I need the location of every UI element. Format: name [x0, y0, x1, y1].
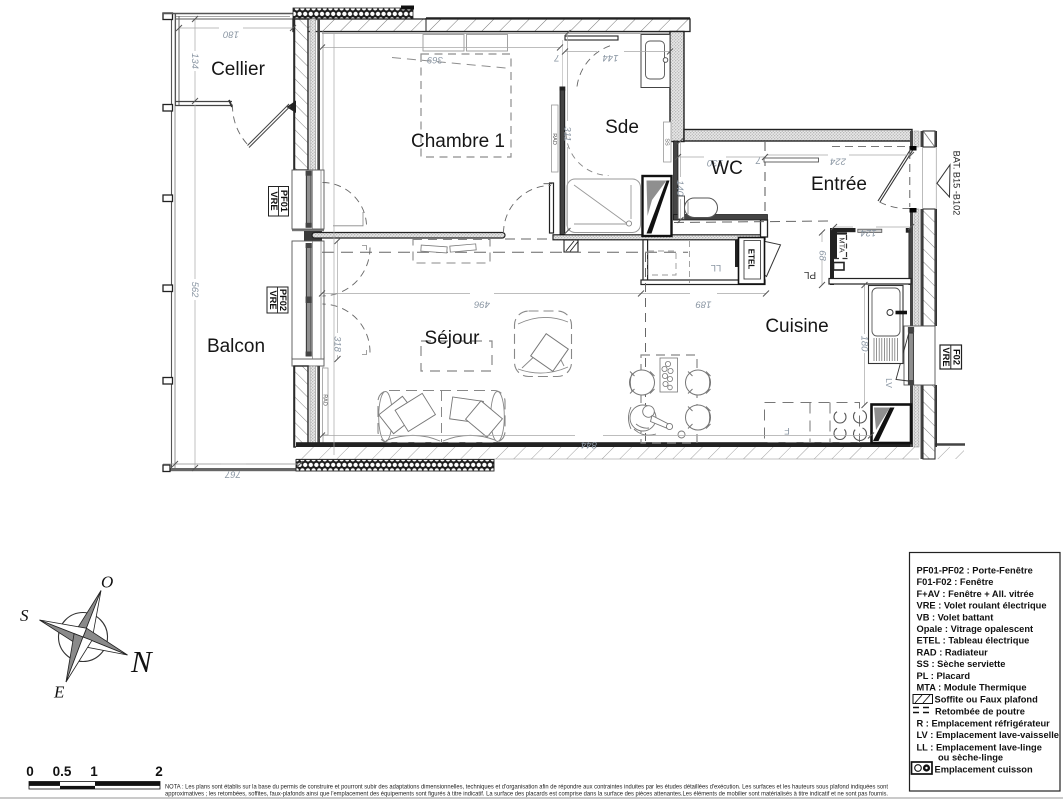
svg-text:MTA : Module Thermique: MTA : Module Thermique: [917, 683, 1027, 693]
svg-text:134: 134: [189, 53, 200, 69]
svg-text:767: 767: [224, 469, 241, 480]
svg-text:PF02: PF02: [278, 289, 288, 311]
svg-text:7: 7: [554, 52, 560, 63]
svg-text:0.5: 0.5: [53, 764, 72, 779]
svg-text:124: 124: [861, 227, 877, 238]
svg-text:SS: SS: [664, 138, 670, 146]
svg-text:approximatives ; les retombées: approximatives ; les retombées, soffites…: [165, 791, 888, 798]
svg-text:Séjour: Séjour: [425, 328, 481, 349]
svg-text:844: 844: [581, 439, 597, 450]
svg-text:1: 1: [90, 764, 98, 779]
svg-text:Entrée: Entrée: [811, 174, 867, 195]
svg-text:S: S: [20, 606, 29, 625]
svg-text:VRE: VRE: [268, 290, 278, 309]
svg-text:140: 140: [674, 180, 685, 197]
svg-text:Cellier: Cellier: [211, 59, 266, 80]
svg-text:180: 180: [222, 29, 239, 40]
svg-text:RAD: RAD: [322, 394, 328, 406]
svg-text:ETEL : Tableau électrique: ETEL : Tableau électrique: [917, 636, 1030, 646]
svg-text:Emplacement cuisson: Emplacement cuisson: [935, 765, 1033, 775]
svg-text:F+AV : Fenêtre + All. vitrée: F+AV : Fenêtre + All. vitrée: [917, 589, 1034, 599]
svg-text:224: 224: [830, 156, 847, 167]
svg-text:ETEL: ETEL: [747, 249, 756, 270]
svg-text:NOTA : Les plans sont établis: NOTA : Les plans sont établis sur la bas…: [165, 784, 888, 791]
svg-text:F02: F02: [952, 349, 962, 365]
svg-text:MTA: MTA: [838, 237, 847, 252]
svg-text:Soffite ou Faux plafond: Soffite ou Faux plafond: [935, 694, 1039, 704]
svg-text:VRE : Volet roulant électrique: VRE : Volet roulant électrique: [917, 601, 1047, 611]
svg-text:Opale : Vitrage opalescent: Opale : Vitrage opalescent: [917, 624, 1034, 634]
svg-text:68: 68: [817, 250, 828, 261]
svg-text:318: 318: [332, 336, 343, 353]
svg-text:PF01: PF01: [279, 190, 289, 212]
svg-text:LL: LL: [711, 262, 722, 273]
svg-text:LV : Emplacement lave-vaissell: LV : Emplacement lave-vaisselle: [917, 730, 1059, 740]
svg-text:E: E: [53, 683, 65, 702]
svg-text:189: 189: [695, 299, 712, 310]
svg-text:RAD : Radiateur: RAD : Radiateur: [917, 647, 989, 657]
svg-text:VRE: VRE: [941, 347, 951, 366]
svg-text:Balcon: Balcon: [207, 336, 265, 357]
svg-text:144: 144: [603, 52, 619, 63]
svg-text:PF01-PF02 : Porte-Fenêtre: PF01-PF02 : Porte-Fenêtre: [917, 566, 1033, 576]
svg-text:BAT. B15 -B102: BAT. B15 -B102: [952, 151, 962, 216]
svg-text:LL : Emplacement lave-linge: LL : Emplacement lave-linge: [917, 743, 1042, 753]
svg-text:LV: LV: [884, 378, 894, 388]
svg-text:562: 562: [189, 282, 200, 299]
svg-text:7: 7: [755, 155, 761, 166]
svg-text:R : Emplacement réfrigérateur: R : Emplacement réfrigérateur: [917, 718, 1051, 728]
svg-text:N: N: [130, 644, 154, 679]
svg-text:RAD: RAD: [551, 133, 557, 145]
svg-text:PL : Placard: PL : Placard: [917, 671, 971, 681]
svg-text:Chambre 1: Chambre 1: [411, 131, 505, 152]
svg-text:2: 2: [155, 764, 163, 779]
svg-text:Sde: Sde: [605, 117, 639, 138]
svg-text:F01-F02 : Fenêtre: F01-F02 : Fenêtre: [917, 577, 994, 587]
svg-text:311: 311: [562, 126, 573, 141]
svg-text:180: 180: [859, 336, 870, 353]
svg-text:SS : Sèche serviette: SS : Sèche serviette: [917, 659, 1006, 669]
svg-text:WC: WC: [711, 158, 743, 179]
svg-text:369: 369: [426, 54, 443, 65]
svg-text:0: 0: [26, 764, 34, 779]
svg-text:Retombée de poutre: Retombée de poutre: [935, 706, 1025, 716]
svg-text:PL: PL: [803, 269, 816, 280]
svg-text:O: O: [101, 573, 113, 592]
svg-text:Cuisine: Cuisine: [765, 316, 828, 337]
svg-text:F: F: [784, 426, 790, 436]
svg-text:VB : Volet battant: VB : Volet battant: [917, 612, 994, 622]
svg-text:VRE: VRE: [269, 191, 279, 210]
svg-text:496: 496: [473, 299, 490, 310]
svg-text:ou sèche-linge: ou sèche-linge: [938, 753, 1003, 763]
